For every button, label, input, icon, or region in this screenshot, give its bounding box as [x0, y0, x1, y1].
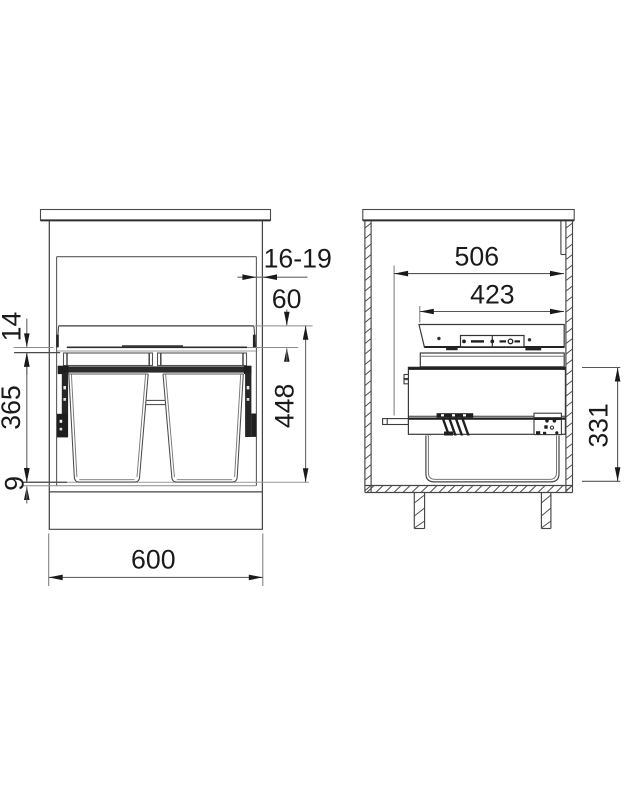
svg-text:14: 14	[0, 312, 27, 342]
svg-text:423: 423	[470, 280, 515, 310]
svg-text:506: 506	[455, 241, 500, 271]
svg-text:365: 365	[0, 385, 26, 430]
svg-text:331: 331	[584, 403, 614, 448]
svg-text:600: 600	[131, 545, 176, 575]
svg-text:16-19: 16-19	[264, 244, 332, 274]
svg-text:448: 448	[270, 384, 300, 429]
svg-text:9: 9	[0, 476, 30, 491]
